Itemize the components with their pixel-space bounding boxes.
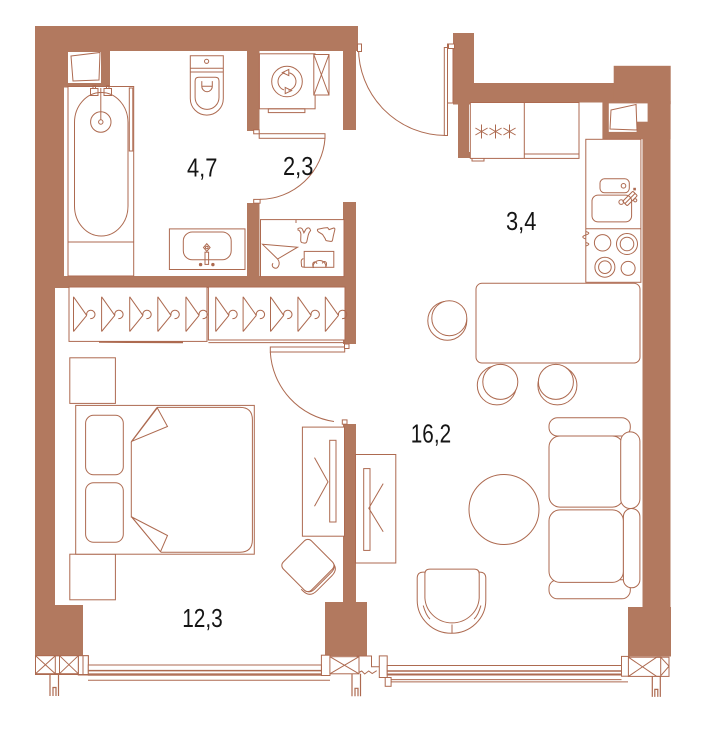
svg-text:4,7: 4,7 [187,153,217,183]
svg-text:3,4: 3,4 [506,206,536,236]
svg-text:2,3: 2,3 [283,151,313,181]
svg-text:12,3: 12,3 [182,603,223,633]
svg-text:16,2: 16,2 [411,418,451,448]
